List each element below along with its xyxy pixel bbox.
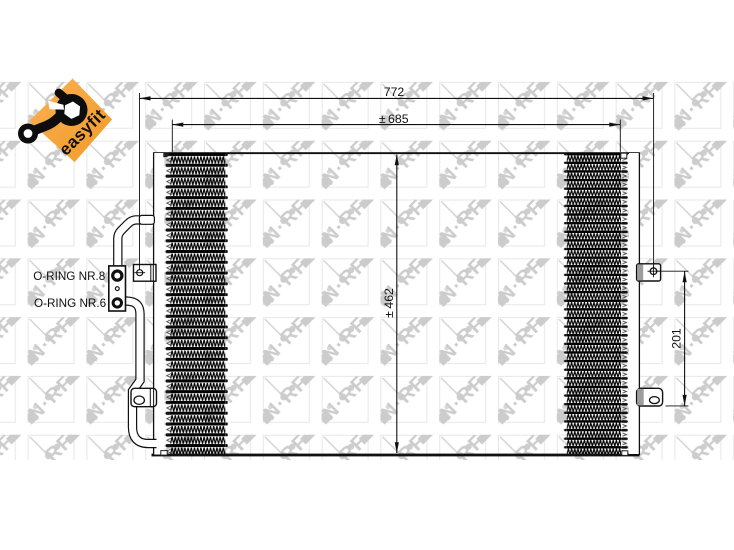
svg-text:201: 201: [670, 328, 684, 349]
svg-text:772: 772: [384, 85, 405, 99]
svg-text:O-RING NR.6: O-RING NR.6: [34, 297, 106, 310]
svg-text:± 462: ± 462: [382, 288, 396, 318]
svg-text:O-RING NR.8: O-RING NR.8: [33, 270, 105, 283]
svg-text:± 685: ± 685: [379, 112, 409, 126]
